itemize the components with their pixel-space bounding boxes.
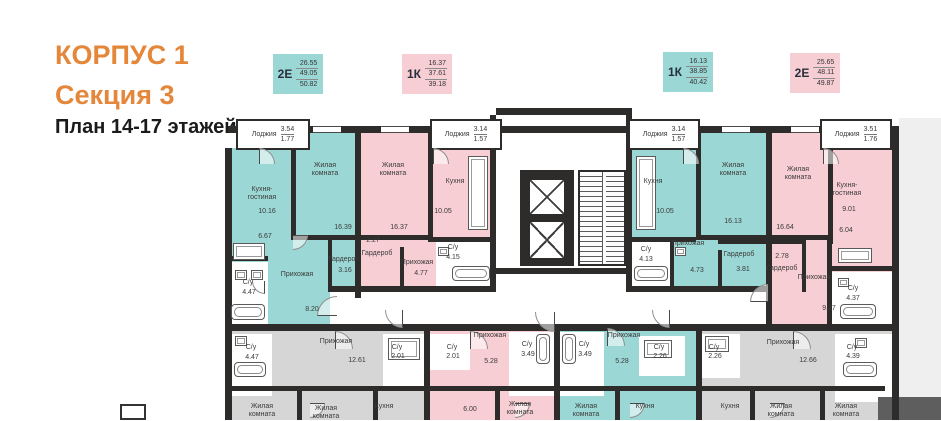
loggia-box: Лоджия3.541.77 [236, 119, 310, 150]
counter-icon [644, 340, 672, 358]
floor-plan: Лоджия3.541.77Лоджия3.141.57Лоджия3.141.… [225, 108, 941, 420]
bathtub-icon [840, 304, 876, 319]
wall [802, 240, 806, 292]
counter-icon [468, 156, 488, 230]
exterior-strip [899, 118, 941, 420]
apartment-2e-left-wardrobe[interactable] [328, 240, 358, 288]
page-title-building: КОРПУС 1 [55, 40, 189, 71]
loggia-areas: 3.141.57 [474, 125, 488, 144]
wall [832, 266, 897, 271]
loggia-areas: 3.541.77 [281, 125, 295, 144]
page-title-section: Секция 3 [55, 80, 175, 111]
apartment-type-label: 1К [668, 65, 682, 79]
wall [424, 330, 430, 420]
toilet-icon [235, 270, 247, 280]
wall [750, 386, 755, 420]
apartment-1k-left[interactable] [360, 132, 434, 247]
legend-swatch [120, 404, 146, 420]
page-title-floors: План 14-17 этажей [55, 116, 237, 139]
bathtub-icon [452, 266, 490, 281]
apartment-areas: 26.55 49.05 50.82 [296, 59, 318, 89]
loggia-box: Лоджия3.511.76 [820, 119, 892, 150]
window-icon [791, 126, 819, 133]
counter-icon [838, 248, 872, 263]
apartment-areas: 16.13 38.85 40.42 [686, 57, 708, 87]
wall [696, 330, 702, 420]
apartment-type-label: 1К [407, 67, 421, 81]
sink-icon [251, 270, 263, 280]
wall [718, 250, 722, 292]
wall [827, 240, 832, 324]
loggia-label: Лоджия [835, 131, 860, 138]
wall [615, 386, 620, 420]
wall [772, 240, 802, 244]
apartment-areas: 16.37 37.61 39.18 [425, 59, 447, 89]
loggia-areas: 3.141.57 [672, 125, 686, 144]
apartment-card-1k-right[interactable]: 1К 16.13 38.85 40.42 [663, 52, 713, 92]
wall [328, 236, 332, 292]
apartment-card-1k-left[interactable]: 1К 16.37 37.61 39.18 [402, 54, 452, 94]
elevator-shaft-icon [528, 220, 566, 260]
bathtub-icon [843, 362, 877, 377]
wall [400, 247, 404, 292]
wall [495, 386, 500, 420]
dimmed-overlay [878, 397, 941, 420]
bathtub-icon [231, 304, 265, 320]
counter-icon [705, 336, 729, 352]
window-icon [313, 126, 341, 133]
loggia-areas: 3.511.76 [864, 125, 878, 144]
staircase-icon [578, 170, 626, 266]
apartment-areas: 25.65 48.11 49.87 [813, 58, 835, 88]
loggia-box: Лоджия3.141.57 [430, 119, 502, 150]
wall [820, 386, 825, 420]
wall [632, 286, 766, 292]
wall [632, 237, 696, 242]
sink-icon [838, 278, 849, 287]
wall [554, 330, 560, 420]
wall [297, 386, 302, 420]
apartment-card-2e-left[interactable]: 2Е 26.55 49.05 50.82 [273, 54, 323, 94]
wall [355, 132, 361, 298]
bathroom-area [430, 334, 470, 370]
bathtub-icon [536, 334, 550, 364]
stove-icon [233, 243, 265, 260]
toilet-icon [675, 247, 686, 256]
wall [373, 386, 378, 420]
wall [225, 324, 899, 331]
wall [670, 242, 674, 292]
wall [496, 108, 632, 115]
wall [225, 148, 232, 420]
apartment-card-2e-right[interactable]: 2Е 25.65 48.11 49.87 [790, 53, 840, 93]
window-icon [381, 126, 409, 133]
wall [892, 126, 899, 420]
wall [718, 240, 768, 244]
wall [230, 386, 885, 391]
sink-icon [855, 338, 867, 348]
bathtub-icon [234, 362, 266, 377]
loggia-label: Лоджия [643, 131, 668, 138]
loggia-box: Лоджия3.141.57 [628, 119, 700, 150]
wall [328, 236, 360, 240]
counter-icon [388, 338, 420, 360]
wall [428, 237, 492, 242]
bathtub-icon [634, 266, 668, 281]
wall [496, 268, 632, 274]
toilet-icon [438, 247, 449, 256]
wall [328, 288, 360, 292]
apartment-type-label: 2Е [795, 66, 810, 80]
apartment-type-label: 2Е [278, 67, 293, 81]
bathtub-icon [562, 334, 576, 364]
elevator-shaft-icon [528, 178, 566, 216]
window-icon [722, 126, 750, 133]
loggia-label: Лоджия [252, 131, 277, 138]
loggia-label: Лоджия [445, 131, 470, 138]
sink-icon [235, 336, 247, 346]
wall [360, 235, 428, 240]
counter-icon [636, 156, 656, 230]
